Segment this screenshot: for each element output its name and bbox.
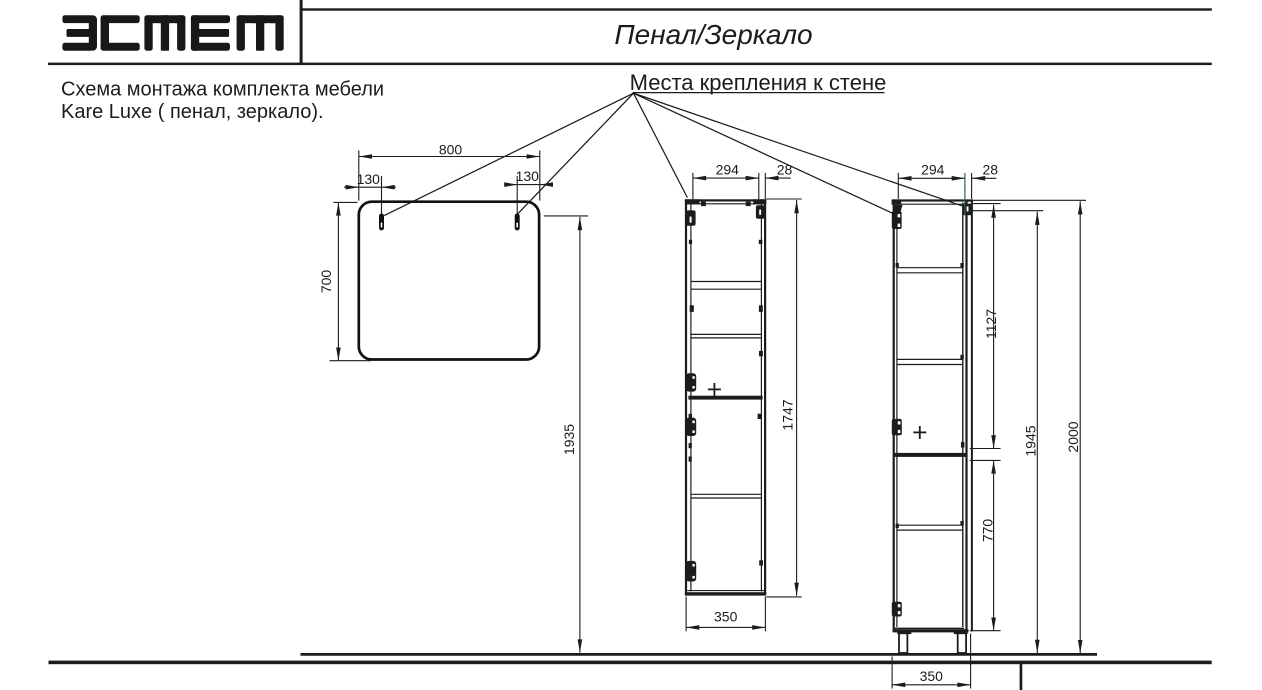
svg-text:130: 130 [516, 168, 540, 184]
svg-text:1747: 1747 [780, 399, 796, 430]
svg-text:28: 28 [983, 162, 999, 178]
svg-text:1935: 1935 [561, 424, 577, 455]
svg-text:Пенал/Зеркало: Пенал/Зеркало [614, 19, 812, 50]
svg-text:28: 28 [777, 161, 793, 177]
svg-text:800: 800 [439, 142, 463, 158]
svg-text:294: 294 [716, 161, 740, 177]
svg-text:Схема монтажа комплекта мебели: Схема монтажа комплекта мебели [61, 79, 384, 101]
svg-text:350: 350 [920, 668, 944, 684]
svg-text:2000: 2000 [1065, 421, 1081, 452]
svg-text:Места крепления к стене: Места крепления к стене [630, 70, 887, 95]
svg-text:294: 294 [921, 162, 945, 178]
svg-text:1945: 1945 [1023, 425, 1039, 456]
svg-text:1127: 1127 [983, 309, 999, 339]
svg-text:770: 770 [980, 519, 996, 543]
svg-text:700: 700 [318, 270, 334, 294]
svg-text:Kare Luxe ( пенал, зеркало).: Kare Luxe ( пенал, зеркало). [61, 101, 324, 123]
svg-text:350: 350 [714, 609, 738, 625]
svg-text:130: 130 [357, 171, 381, 187]
